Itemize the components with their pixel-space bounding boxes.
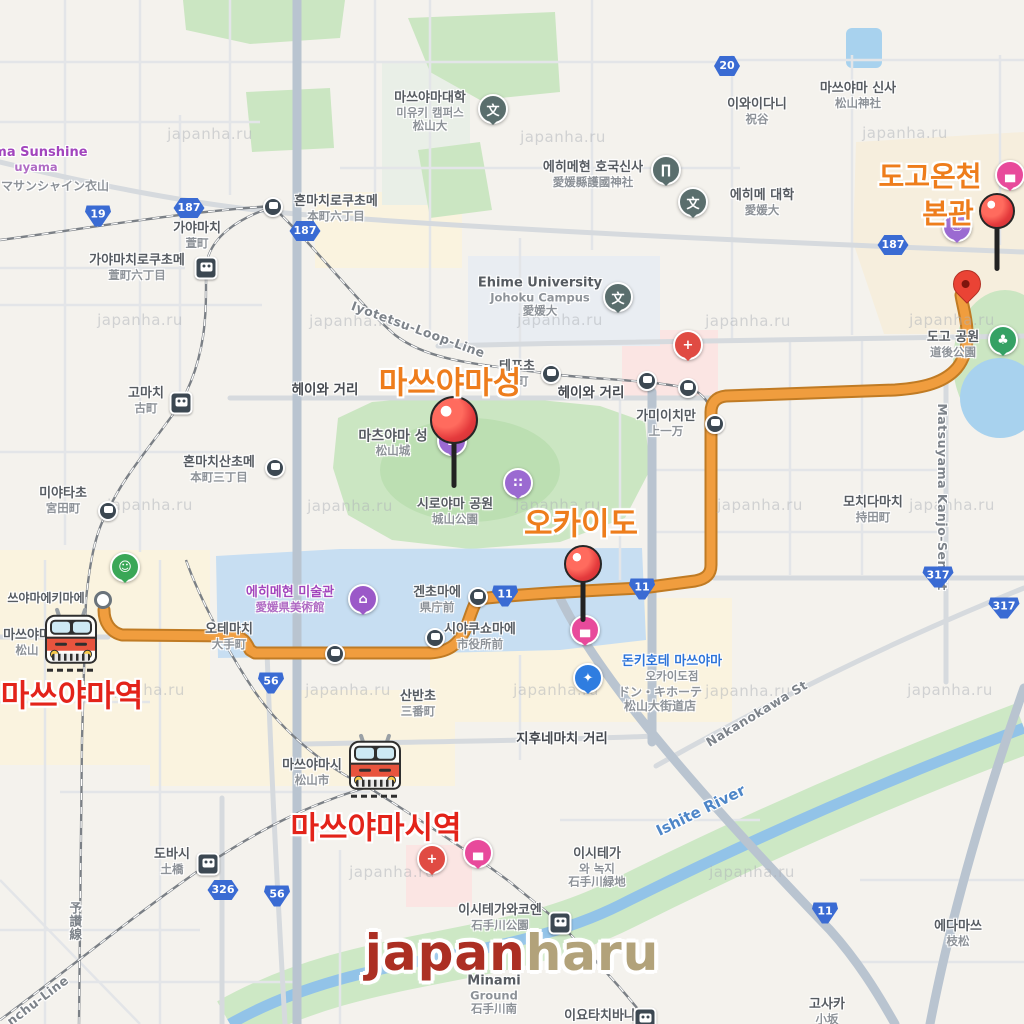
map-label: 지후네마치 거리	[516, 732, 608, 748]
watermark: japanha.ru	[909, 311, 995, 329]
park-icon[interactable]: ♣	[988, 325, 1018, 355]
map-label: 마츠야마 성松山城	[358, 428, 427, 457]
tram-stop-icon[interactable]	[541, 364, 561, 384]
train-station-icon[interactable]	[634, 1008, 657, 1024]
map-label: マサンシャイン衣山	[1, 180, 109, 194]
watermark: japanha.ru	[107, 496, 193, 514]
tram-stop-icon[interactable]	[637, 371, 657, 391]
map-label: 혼마치로쿠초메本町六丁目	[294, 195, 378, 223]
route-shield: 19	[85, 206, 111, 227]
map-label: 마쓰야마대학미유키 캠퍼스松山大	[394, 91, 466, 132]
route-shield: 187	[290, 221, 321, 241]
tram-stop-icon[interactable]	[98, 501, 118, 521]
logo-part-haru: haru	[526, 924, 660, 982]
map-label: 이와이다니祝谷	[727, 98, 787, 126]
watermark: japanha.ru	[909, 496, 995, 514]
map-label: 고사카小坂	[809, 998, 845, 1024]
map-label: Matsuyama Kanjo-Sen St	[935, 403, 949, 590]
map-label: nchu-Line	[4, 973, 71, 1024]
logo-part-japan: japan	[365, 924, 526, 982]
destination-pin[interactable]	[953, 270, 981, 298]
map-label: 혼마치산초메本町三丁目	[183, 456, 255, 484]
watermark: japanha.ru	[97, 311, 183, 329]
train-icon	[347, 734, 403, 798]
watermark: japanha.ru	[705, 312, 791, 330]
map-label: 헤이와 거리	[292, 383, 359, 399]
route-shield: 187	[878, 235, 909, 255]
tram-stop-icon[interactable]	[468, 587, 488, 607]
highlight-label: 마쓰야마시역	[290, 803, 461, 848]
highlight-label: 마쓰야마성	[379, 358, 522, 403]
map-label: 에히메현 미술관愛媛県美術館	[246, 586, 334, 614]
map-label: Ehime UniversityJohoku Campus愛媛大	[478, 276, 602, 317]
tram-stop-icon[interactable]	[678, 378, 698, 398]
map-label: 가미이치만上一万	[636, 410, 696, 438]
map-label: 이시테가와 녹지石手川緑地	[568, 847, 626, 888]
tram-stop-icon[interactable]	[425, 628, 445, 648]
map-label: 미야타초宮田町	[39, 487, 87, 515]
route-shield: 11	[812, 903, 838, 924]
watermark: japanha.ru	[907, 681, 993, 699]
hospital-icon[interactable]: +	[673, 330, 703, 360]
store-icon[interactable]: ☺	[110, 552, 140, 582]
map-label: 가야마치로쿠초메萱町六丁目	[89, 254, 185, 282]
map-label: 에히메현 호국신사愛媛縣護國神社	[543, 161, 643, 189]
route-shield: 11	[492, 586, 518, 607]
map-label: 고마치古町	[128, 387, 164, 415]
map-label: 가야마치萱町	[173, 222, 221, 250]
hospital-icon[interactable]: +	[417, 844, 447, 874]
highlight-label: 마쓰야마역	[1, 671, 144, 716]
route-shield: 56	[264, 886, 290, 907]
map-label: 에히메 대학愛媛大	[730, 189, 794, 217]
museum-icon[interactable]: ⌂	[348, 584, 378, 614]
route-shield: 11	[629, 579, 655, 600]
watermark: japanha.ru	[307, 497, 393, 515]
map-label: 시야쿠쇼마에市役所前	[444, 623, 516, 651]
school-icon[interactable]: 文	[603, 282, 633, 312]
school-icon[interactable]: 文	[478, 94, 508, 124]
map-label: 헤이와 거리	[558, 386, 625, 402]
map-label: 모치다마치持田町	[843, 496, 903, 524]
map-label: 산반초三番町	[400, 690, 436, 718]
route-shield: 20	[714, 56, 740, 76]
shrine-icon[interactable]: ∏	[651, 155, 681, 185]
japanharu-logo: japanharu	[365, 924, 660, 982]
map-label: ema Sunshineuyama	[0, 146, 88, 174]
map-label: 겐초마에県庁前	[413, 586, 461, 614]
map-label: 이요타치바나	[564, 1010, 636, 1024]
train-station-icon[interactable]	[170, 392, 193, 415]
route-shield: 326	[208, 880, 239, 900]
tram-stop-icon[interactable]	[263, 197, 283, 217]
watermark: japanha.ru	[862, 124, 948, 142]
hotel-icon[interactable]: ▄	[995, 160, 1024, 190]
train-station-icon[interactable]	[197, 853, 220, 876]
highlight-label: 오카이도	[524, 499, 638, 544]
highlight-label: 도고온천	[878, 155, 981, 195]
tram-terminal-icon[interactable]	[94, 591, 112, 609]
tram-stop-icon[interactable]	[325, 644, 345, 664]
map-label: 予讃線	[67, 902, 81, 941]
map-label: 돈키호테 마쓰야마오카이도점	[622, 655, 722, 683]
map-label: 마쓰야마 신사松山神社	[820, 82, 896, 110]
highlight-label: 본관	[922, 192, 974, 232]
train-station-icon[interactable]	[195, 257, 218, 280]
map-label: 도바시土橋	[154, 848, 190, 876]
map-label: ドン・キホーテ松山大街道店	[618, 686, 702, 714]
map-label: 도고 공원道後公園	[927, 331, 979, 359]
route-shield: 56	[258, 673, 284, 694]
watermark: japanha.ru	[167, 125, 253, 143]
dots-icon[interactable]: ∷	[503, 468, 533, 498]
map-label: 에다마쓰枝松	[934, 920, 982, 948]
route-shield: 187	[174, 198, 205, 218]
map-label: 오테마치大手町	[205, 623, 253, 651]
route-shield: 317	[989, 598, 1020, 619]
map-label: 시로야마 공원城山公園	[417, 498, 493, 526]
watermark: japanha.ru	[709, 863, 795, 881]
tram-stop-icon[interactable]	[265, 458, 285, 478]
watermark: japanha.ru	[717, 496, 803, 514]
watermark: japanha.ru	[520, 128, 606, 146]
train-icon	[43, 608, 99, 672]
map-label: Iyotetsu-Loop-Line	[349, 299, 487, 361]
shopping-icon[interactable]: ✦	[573, 663, 603, 693]
hotel-icon[interactable]: ▄	[463, 838, 493, 868]
map-label: 마쓰야마시松山市	[282, 759, 342, 787]
watermark: japanha.ru	[305, 681, 391, 699]
map-canvas[interactable]: japanha.rujapanha.rujapanha.rujapanha.ru…	[0, 0, 1024, 1024]
tram-stop-icon[interactable]	[705, 414, 725, 434]
school-icon[interactable]: 文	[678, 187, 708, 217]
map-label: Ishite River	[654, 782, 749, 840]
map-label: 쓰야마에키마에	[7, 592, 84, 606]
